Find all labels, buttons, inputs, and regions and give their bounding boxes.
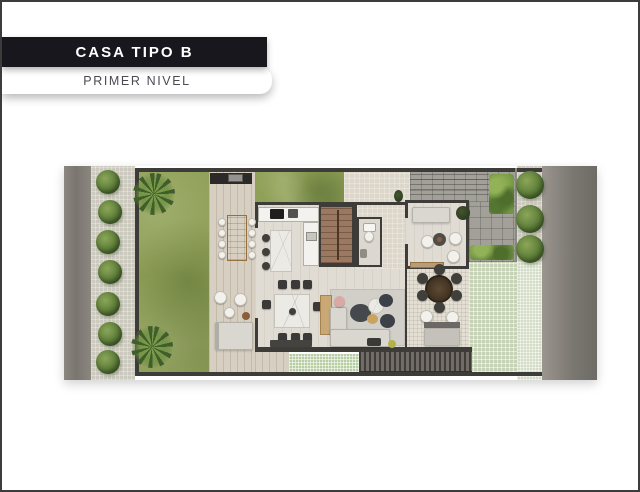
street-tree bbox=[98, 260, 122, 284]
patio-chair bbox=[434, 302, 445, 313]
street-right bbox=[542, 166, 597, 380]
tvroom-table-tray bbox=[437, 237, 442, 242]
toilet-bowl bbox=[364, 231, 374, 242]
green-pavers bbox=[469, 262, 517, 372]
tvroom-chair bbox=[449, 232, 462, 245]
tvroom-sofa bbox=[412, 207, 450, 223]
kitchen-island bbox=[270, 230, 292, 272]
tvroom-chair bbox=[447, 250, 460, 263]
street-tree bbox=[516, 205, 544, 233]
deck-chair bbox=[218, 218, 226, 226]
street-tree bbox=[516, 235, 544, 263]
accent-chair bbox=[334, 296, 345, 307]
palm-tree bbox=[133, 173, 175, 215]
pouf bbox=[380, 314, 395, 328]
patio-chair bbox=[451, 290, 462, 301]
street-tree bbox=[98, 200, 122, 224]
deck-chair bbox=[248, 218, 256, 226]
street-tree bbox=[516, 171, 544, 199]
tvroom-chair bbox=[421, 235, 434, 248]
deck-chair bbox=[218, 251, 226, 259]
powder-sink bbox=[360, 249, 367, 258]
deck-chair bbox=[248, 229, 256, 237]
tvroom-wall-left-a bbox=[405, 200, 408, 218]
patio-chair bbox=[417, 290, 428, 301]
sofa-throw bbox=[367, 338, 381, 346]
island-stool bbox=[262, 234, 270, 242]
deck-chair bbox=[248, 251, 256, 259]
deck-chair bbox=[218, 240, 226, 248]
staircase bbox=[319, 205, 354, 265]
patio-round-table bbox=[425, 275, 453, 303]
dining-chair bbox=[303, 280, 312, 289]
entry-plant bbox=[394, 190, 403, 202]
page-subtitle: PRIMER NIVEL bbox=[83, 74, 190, 88]
lot-wall-bottom bbox=[135, 372, 542, 376]
lounge-chair bbox=[214, 291, 227, 304]
hedge bbox=[489, 174, 514, 214]
dining-centerpiece bbox=[289, 308, 296, 315]
lot-wall-top bbox=[135, 168, 542, 172]
terrace-extension bbox=[255, 352, 289, 372]
house-wall-bottom bbox=[255, 347, 472, 352]
dining-chair bbox=[262, 300, 271, 309]
patio-chair bbox=[451, 273, 462, 284]
page-title: CASA TIPO B bbox=[75, 44, 193, 61]
bbq-grill-icon bbox=[228, 174, 243, 182]
floor-plan bbox=[64, 166, 597, 380]
cooktop bbox=[270, 209, 284, 219]
hedge bbox=[470, 245, 514, 260]
kitchen-counter-right bbox=[303, 222, 319, 266]
tvroom-wall-left-b bbox=[405, 244, 408, 269]
kitchen-appliance bbox=[288, 209, 298, 218]
dining-chair bbox=[278, 280, 287, 289]
lounge-tray bbox=[242, 312, 250, 320]
title-banner: CASA TIPO B bbox=[2, 37, 267, 67]
palm-tree bbox=[131, 326, 173, 368]
street-tree bbox=[96, 350, 120, 374]
island-stool bbox=[262, 248, 270, 256]
outdoor-sofa bbox=[424, 328, 460, 346]
deck-chair bbox=[248, 240, 256, 248]
floor-plant bbox=[388, 340, 396, 348]
pouf bbox=[379, 294, 393, 307]
tvroom-wall-top bbox=[405, 200, 469, 203]
lounge-side-table bbox=[224, 307, 235, 318]
patio-divider-wall bbox=[405, 269, 407, 349]
potted-plant bbox=[456, 206, 470, 220]
deck-chair bbox=[218, 229, 226, 237]
brochure-page: CASA TIPO B PRIMER NIVEL bbox=[0, 0, 640, 492]
street-tree bbox=[98, 322, 122, 346]
street-left bbox=[64, 166, 91, 380]
deck-dining-table bbox=[227, 215, 247, 261]
house-wall-left-b bbox=[255, 318, 258, 350]
louver-deck bbox=[359, 350, 472, 372]
lounge-chair bbox=[234, 293, 247, 306]
patio-chair bbox=[417, 273, 428, 284]
green-tile-patch bbox=[289, 354, 359, 372]
driveway-ramp bbox=[410, 173, 489, 195]
patio-chair bbox=[434, 264, 445, 275]
grass-patch-top bbox=[255, 172, 344, 204]
street-tree bbox=[96, 230, 120, 254]
dining-chair bbox=[291, 280, 300, 289]
sectional-sofa-bottom bbox=[330, 329, 390, 347]
sidewalk-right-bottom bbox=[517, 262, 542, 380]
kitchen-sink bbox=[306, 232, 317, 241]
subtitle-banner: PRIMER NIVEL bbox=[2, 67, 272, 94]
street-tree bbox=[96, 170, 120, 194]
console-table bbox=[270, 340, 312, 347]
deck-sofa bbox=[215, 322, 253, 350]
street-tree bbox=[96, 292, 120, 316]
pouf-mustard bbox=[367, 314, 378, 324]
island-stool bbox=[262, 262, 270, 270]
